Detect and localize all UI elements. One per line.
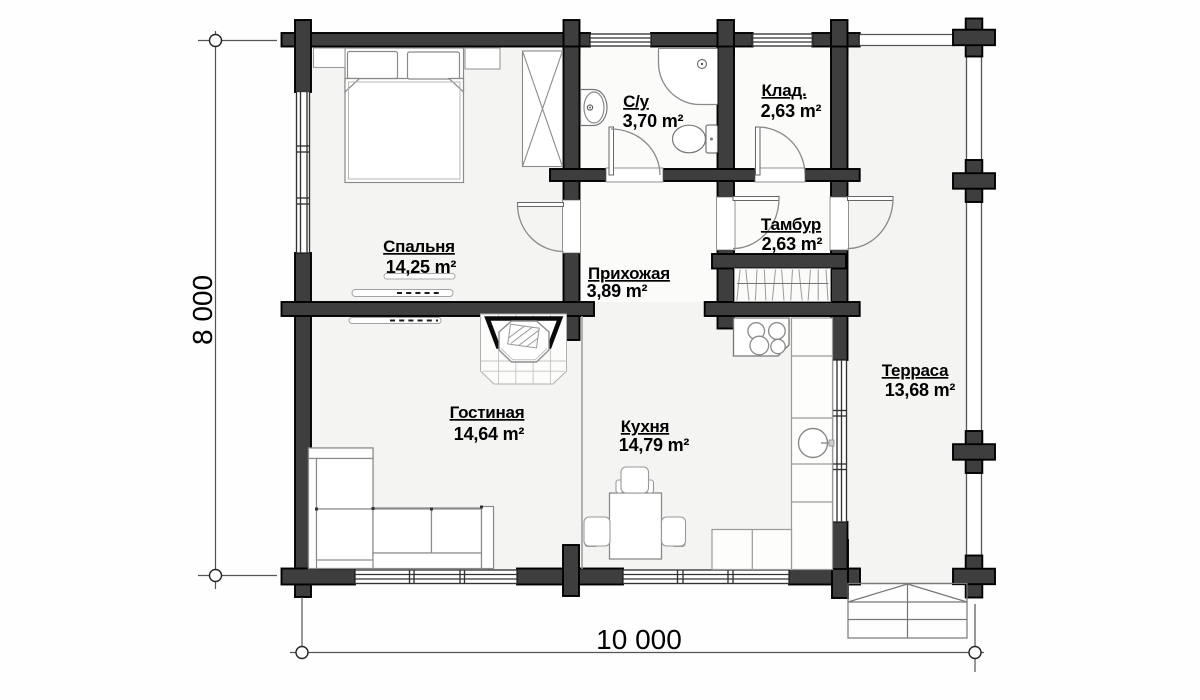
svg-text:3,89 m²: 3,89 m² [587, 281, 648, 301]
svg-text:С/у: С/у [623, 92, 650, 111]
svg-text:2,63 m²: 2,63 m² [761, 101, 822, 121]
svg-text:Кухня: Кухня [621, 417, 669, 436]
svg-text:8 000: 8 000 [187, 275, 218, 345]
svg-text:14,25 m²: 14,25 m² [386, 257, 457, 277]
svg-text:3,70 m²: 3,70 m² [623, 111, 684, 131]
svg-text:Клад.: Клад. [762, 81, 807, 100]
svg-text:Гостиная: Гостиная [450, 403, 525, 422]
svg-text:14,64 m²: 14,64 m² [454, 424, 525, 444]
svg-text:13,68 m²: 13,68 m² [885, 380, 956, 400]
svg-text:Тамбур: Тамбур [761, 215, 821, 234]
svg-text:2,63 m²: 2,63 m² [762, 234, 823, 254]
svg-text:Спальня: Спальня [383, 237, 455, 256]
svg-text:14,79 m²: 14,79 m² [619, 435, 690, 455]
svg-text:10 000: 10 000 [596, 624, 682, 655]
svg-text:Терраса: Терраса [882, 361, 949, 380]
